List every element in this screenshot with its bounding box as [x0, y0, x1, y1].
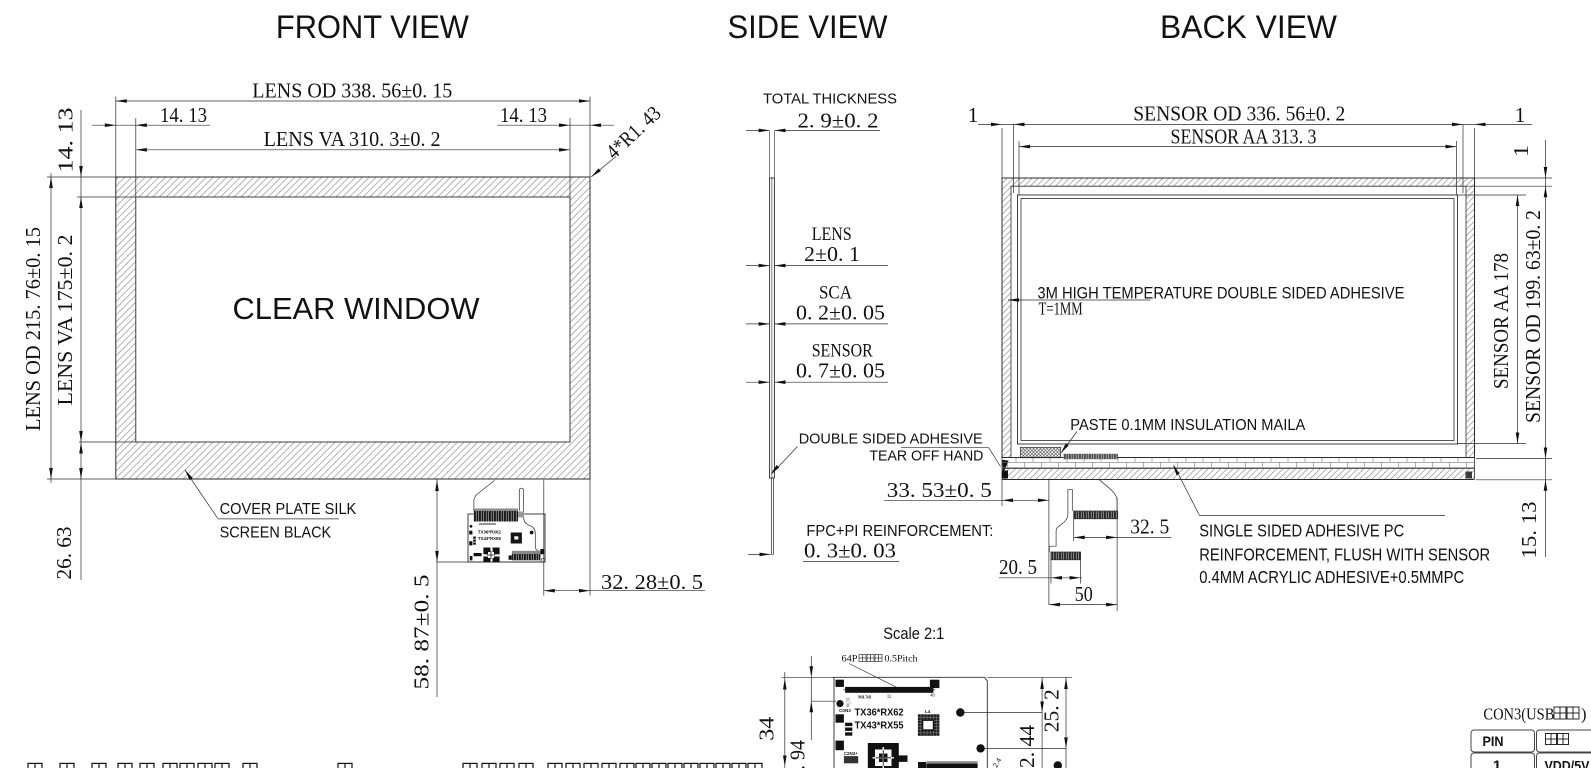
svg-text:25. 2: 25. 2	[1040, 689, 1064, 732]
svg-text:14. 13: 14. 13	[160, 103, 207, 127]
svg-text:BACK VIEW: BACK VIEW	[1160, 9, 1338, 45]
svg-text:1: 1	[968, 103, 979, 127]
svg-text:TX43*RX55: TX43*RX55	[478, 536, 501, 542]
svg-text:TEAR OFF HAND: TEAR OFF HAND	[869, 449, 983, 465]
svg-text:RX98_TX43: RX98_TX43	[858, 694, 871, 699]
svg-text:14. 13: 14. 13	[54, 108, 78, 173]
svg-text:50: 50	[1075, 582, 1093, 606]
svg-text:SCREEN BLACK: SCREEN BLACK	[220, 525, 332, 542]
svg-text:0. 2±0. 05: 0. 2±0. 05	[796, 300, 885, 324]
svg-text:0.5Pitch: 0.5Pitch	[885, 655, 918, 665]
svg-text:2. 9±0. 2: 2. 9±0. 2	[798, 109, 879, 133]
svg-text:LENS VA 310. 3±0. 2: LENS VA 310. 3±0. 2	[264, 127, 441, 151]
svg-text:COVER PLATE SILK: COVER PLATE SILK	[220, 501, 357, 518]
svg-text:T=1MM: T=1MM	[1039, 298, 1083, 318]
svg-text:FRONT VIEW: FRONT VIEW	[276, 9, 470, 45]
svg-text:SIDE VIEW: SIDE VIEW	[728, 9, 889, 45]
svg-text:RX62_TX37: RX62_TX37	[845, 697, 850, 707]
svg-text:0. 3±0. 03: 0. 3±0. 03	[804, 539, 896, 563]
svg-text:DOUBLE SIDED ADHESIVE: DOUBLE SIDED ADHESIVE	[799, 432, 983, 448]
svg-text:34: 34	[755, 716, 779, 741]
svg-text:L4: L4	[925, 709, 931, 714]
svg-text:3M HIGH TEMPERATURE DOUBLE SID: 3M HIGH TEMPERATURE DOUBLE SIDED ADHESIV…	[1037, 283, 1404, 302]
svg-text:64P: 64P	[842, 655, 858, 665]
svg-text:LENS VA 175±0. 2: LENS VA 175±0. 2	[53, 235, 77, 406]
svg-text:20. 5: 20. 5	[999, 555, 1037, 579]
svg-text:VDD/5V: VDD/5V	[1545, 758, 1591, 768]
svg-text:8. 94: 8. 94	[786, 740, 810, 768]
svg-text:CLEAR WINDOW: CLEAR WINDOW	[233, 291, 481, 326]
svg-text:SINGLE SIDED ADHESIVE PC: SINGLE SIDED ADHESIVE PC	[1199, 521, 1404, 541]
svg-text:1: 1	[1493, 758, 1501, 768]
svg-text:LENS OD 215. 76±0. 15: LENS OD 215. 76±0. 15	[21, 227, 45, 431]
svg-text:32. 28±0. 5: 32. 28±0. 5	[601, 570, 703, 594]
svg-text:26. 63: 26. 63	[52, 527, 76, 580]
svg-text:C2N3+: C2N3+	[844, 751, 858, 756]
svg-text:11: 11	[887, 693, 892, 698]
svg-text:REINFORCEMENT, FLUSH WITH SENS: REINFORCEMENT, FLUSH WITH SENSOR	[1199, 545, 1490, 565]
svg-text:PASTE 0.1MM INSULATION MAILA: PASTE 0.1MM INSULATION MAILA	[1070, 417, 1305, 434]
svg-text:1: 1	[1509, 145, 1533, 157]
svg-text:TOTAL THICKNESS: TOTAL THICKNESS	[763, 91, 897, 107]
svg-text:1: 1	[1515, 103, 1526, 127]
svg-text:33. 53±0. 5: 33. 53±0. 5	[887, 478, 992, 502]
svg-text:): )	[1581, 705, 1587, 724]
svg-text:LENS OD 338. 56±0. 15: LENS OD 338. 56±0. 15	[252, 79, 452, 103]
svg-text:0.4MM ACRYLIC ADHESIVE+0.5MMPC: 0.4MM ACRYLIC ADHESIVE+0.5MMPC	[1199, 567, 1464, 587]
svg-text:PIN: PIN	[1483, 733, 1504, 749]
svg-text:2±0. 1: 2±0. 1	[804, 242, 860, 266]
svg-text:SENSOR OD 199. 63±0. 2: SENSOR OD 199. 63±0. 2	[1521, 210, 1545, 423]
svg-text:C0N3: C0N3	[839, 708, 851, 713]
svg-text:SENSOR OD 336. 56±0. 2: SENSOR OD 336. 56±0. 2	[1133, 102, 1345, 126]
svg-text:14. 13: 14. 13	[500, 103, 547, 127]
svg-text:TX36*RX62: TX36*RX62	[855, 707, 904, 719]
svg-text:Scale 2:1: Scale 2:1	[883, 624, 944, 643]
svg-text:TX36*RX62: TX36*RX62	[478, 530, 501, 536]
svg-text:SENSOR AA 178: SENSOR AA 178	[1489, 253, 1513, 389]
svg-text:2. 44: 2. 44	[1015, 724, 1039, 768]
svg-text:CON3(USB: CON3(USB	[1483, 705, 1554, 724]
svg-text:32. 5: 32. 5	[1130, 515, 1169, 539]
svg-text:15. 13: 15. 13	[1517, 502, 1541, 559]
svg-text:TX43*RX55: TX43*RX55	[855, 720, 904, 732]
svg-text:FPC+PI REINFORCEMENT:: FPC+PI REINFORCEMENT:	[806, 523, 993, 540]
svg-text:0. 7±0. 05: 0. 7±0. 05	[796, 359, 885, 383]
svg-text:58. 87±0. 5: 58. 87±0. 5	[410, 575, 434, 690]
svg-text:40: 40	[930, 693, 935, 698]
svg-text:SENSOR AA 313. 3: SENSOR AA 313. 3	[1171, 125, 1317, 149]
